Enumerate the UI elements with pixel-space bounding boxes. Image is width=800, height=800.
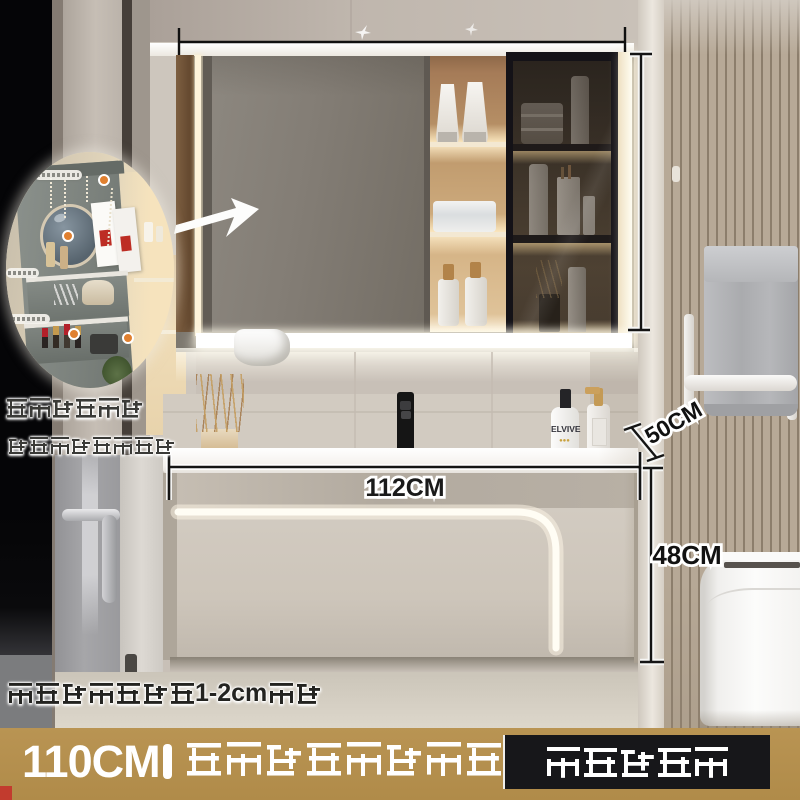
svg-text:48CM: 48CM bbox=[652, 540, 721, 570]
svg-text:50CM: 50CM bbox=[640, 396, 706, 449]
svg-text:112CM: 112CM bbox=[365, 474, 444, 502]
